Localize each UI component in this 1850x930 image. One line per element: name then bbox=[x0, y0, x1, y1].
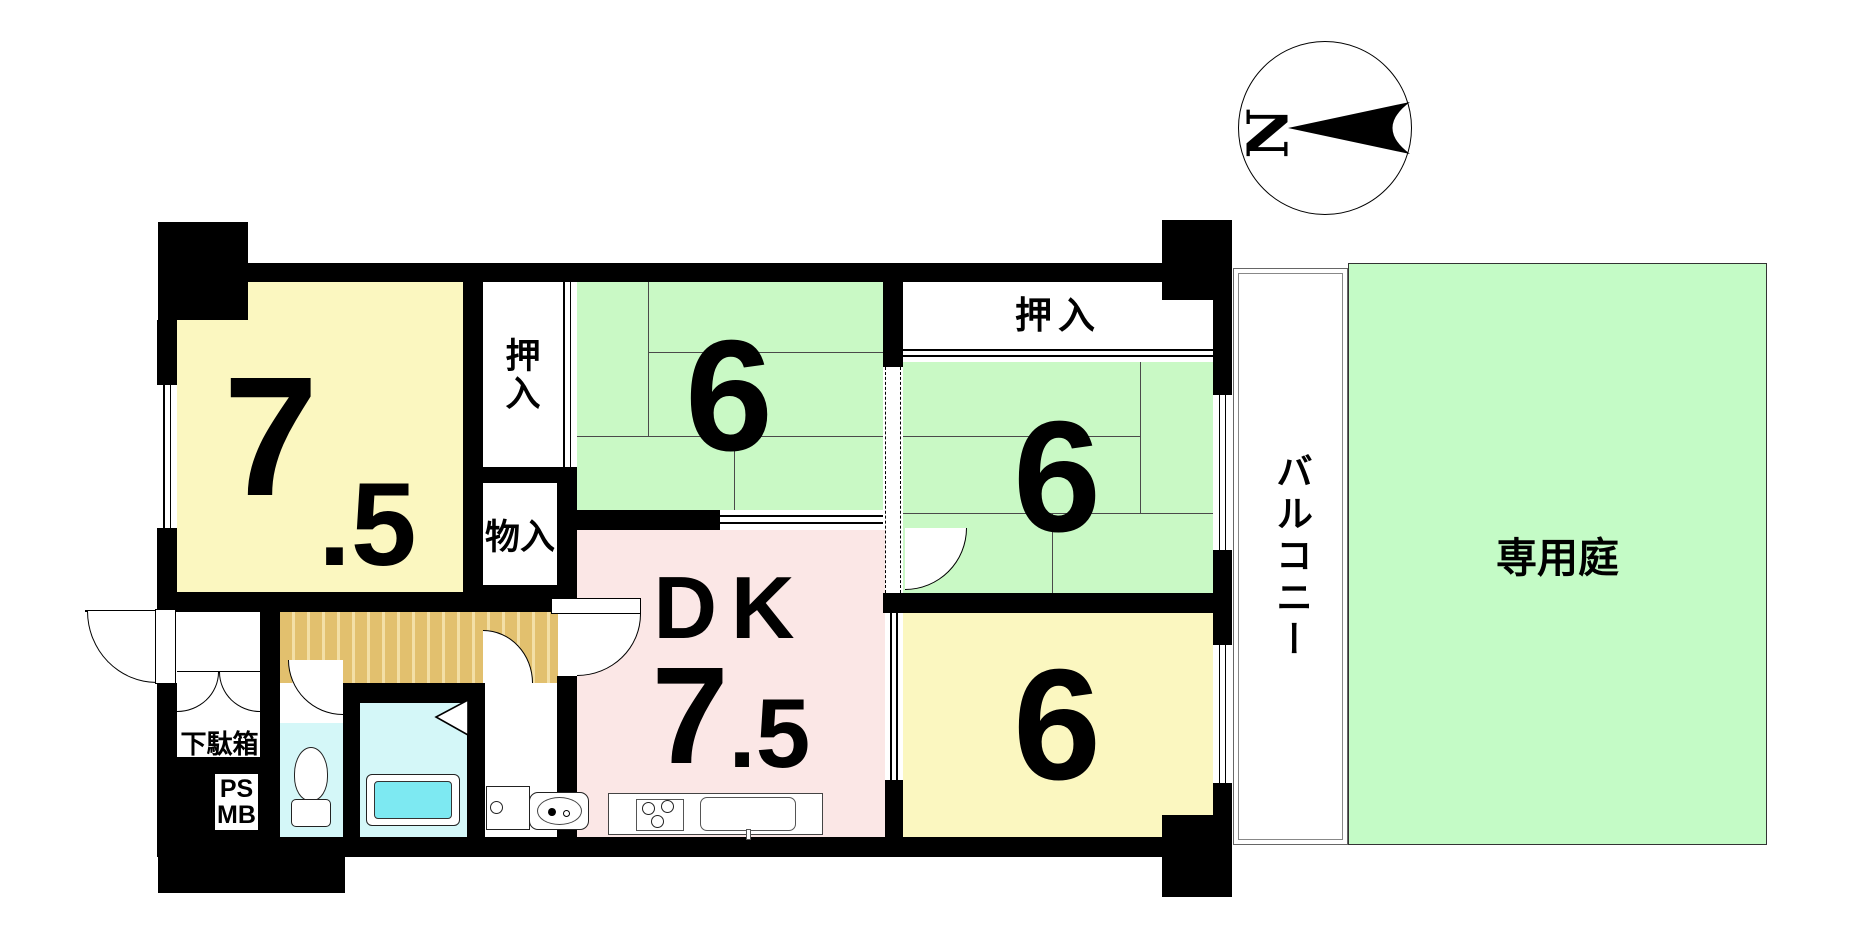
wash-basin-bowl bbox=[537, 797, 582, 825]
bathtub-water bbox=[374, 781, 452, 819]
dk-size-main: 7 bbox=[652, 658, 729, 775]
monoire-label: 物入 bbox=[483, 483, 557, 585]
ps-label: PS bbox=[220, 776, 253, 802]
room-7-5-main: 7 bbox=[224, 352, 319, 522]
private-garden-label: 専用庭 bbox=[1496, 524, 1619, 584]
oshiire-right-label: 押入 bbox=[903, 280, 1213, 343]
oshiire-left-label: 押入 bbox=[483, 282, 557, 467]
door-arc bbox=[219, 672, 260, 712]
toilet-tank bbox=[291, 799, 331, 827]
faucet-dot-icon bbox=[563, 810, 570, 817]
toilet-door-arc bbox=[288, 660, 343, 715]
room-6-right-label: 6 bbox=[903, 362, 1213, 593]
entrance-door-arc bbox=[87, 611, 157, 683]
window bbox=[1213, 645, 1232, 783]
wall-segment bbox=[343, 703, 360, 857]
private-garden: 専用庭 bbox=[1348, 263, 1767, 845]
oshiire-sliding-door bbox=[903, 345, 1213, 362]
fusuma-sliding-door bbox=[720, 510, 883, 530]
entrance-door-leaf bbox=[155, 609, 176, 684]
room-7-5-frac: .5 bbox=[318, 466, 416, 584]
room-6-top-label: 6 bbox=[577, 282, 883, 510]
wall-segment bbox=[1213, 783, 1232, 817]
fusuma-dashed-door bbox=[885, 367, 901, 593]
door-arc bbox=[177, 672, 219, 712]
drain-icon bbox=[490, 801, 503, 814]
wall-segment bbox=[463, 282, 483, 612]
dk-size-frac: .5 bbox=[729, 692, 811, 775]
wall-segment bbox=[157, 592, 483, 612]
fusuma-sliding-door bbox=[557, 282, 577, 467]
sliding-door bbox=[885, 613, 903, 780]
wall-segment bbox=[883, 263, 903, 367]
mb-label: MB bbox=[217, 802, 256, 828]
burner-icon bbox=[651, 815, 664, 828]
wall-segment bbox=[158, 853, 345, 893]
wall-segment bbox=[467, 683, 485, 857]
bath-door-fold-icon bbox=[434, 699, 469, 737]
shoe-cabinet-label: 下駄箱 bbox=[172, 726, 267, 758]
wall-segment bbox=[157, 320, 177, 385]
ps-mb-shaft: PS MB bbox=[215, 774, 258, 830]
wall-segment bbox=[885, 780, 903, 837]
wall-segment bbox=[557, 467, 577, 608]
wall-segment bbox=[1213, 282, 1232, 395]
window bbox=[1213, 395, 1232, 550]
window bbox=[157, 385, 177, 528]
north-label: N bbox=[1236, 107, 1302, 158]
sink-tap-icon bbox=[746, 829, 751, 840]
room-7-5-label: 7.5 bbox=[177, 282, 463, 592]
dk-label: DK 7.5 bbox=[577, 530, 885, 810]
floor-plan-canvas: バルコニー 専用庭 N 7.5 6 6 6 DK 7.5 押入 物入 押入 下駄… bbox=[0, 0, 1850, 930]
room-6-bottom-label: 6 bbox=[903, 613, 1213, 837]
wall-segment bbox=[883, 593, 1232, 613]
balcony-label: バルコニー bbox=[1248, 268, 1333, 845]
wall-segment bbox=[577, 510, 720, 530]
toilet-bowl bbox=[294, 747, 328, 801]
